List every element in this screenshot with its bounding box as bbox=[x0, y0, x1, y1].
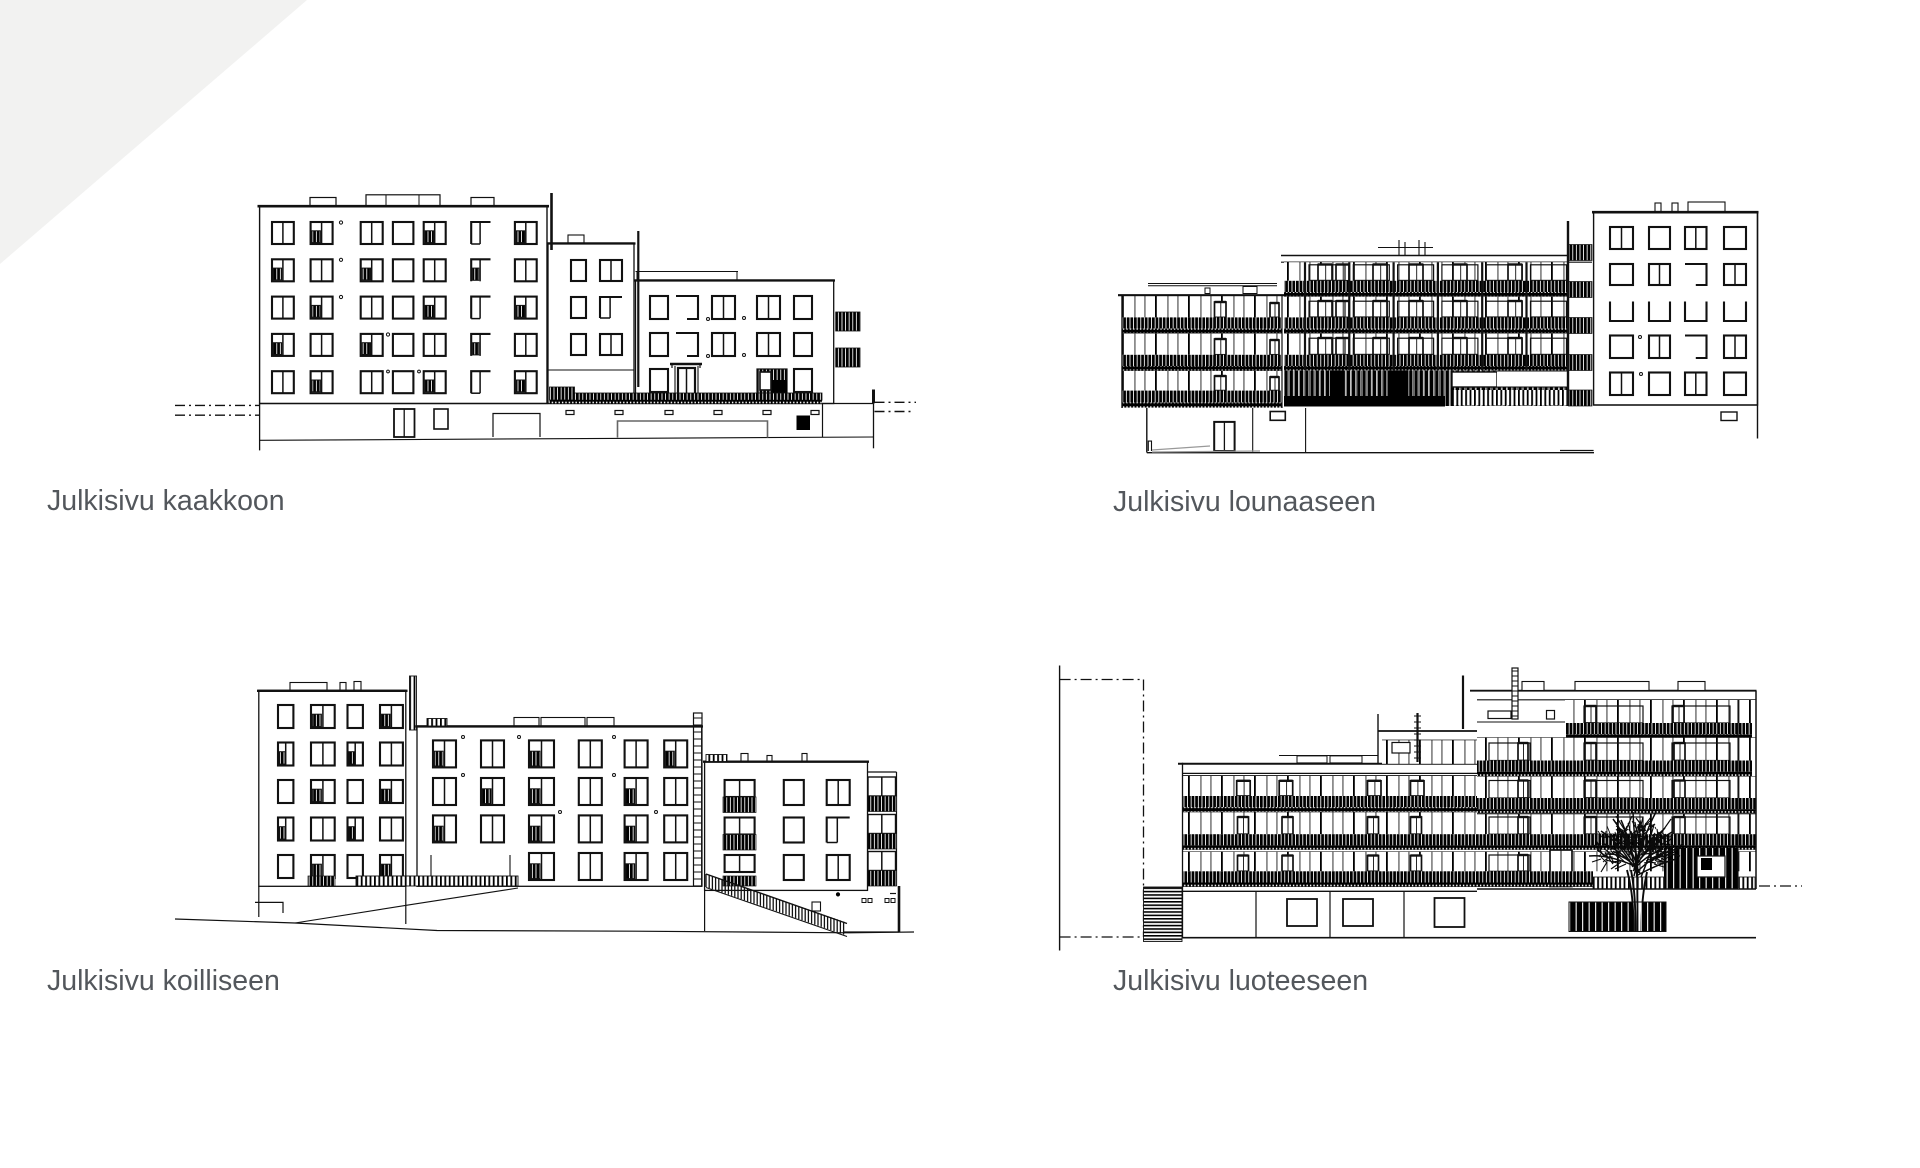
svg-text:Julkisivu kaakkoon: Julkisivu kaakkoon bbox=[47, 485, 285, 517]
svg-text:Julkisivu lounaaseen: Julkisivu lounaaseen bbox=[1113, 486, 1376, 518]
svg-text:Julkisivu koilliseen: Julkisivu koilliseen bbox=[47, 965, 280, 997]
svg-text:Julkisivu luoteeseen: Julkisivu luoteeseen bbox=[1113, 965, 1368, 997]
